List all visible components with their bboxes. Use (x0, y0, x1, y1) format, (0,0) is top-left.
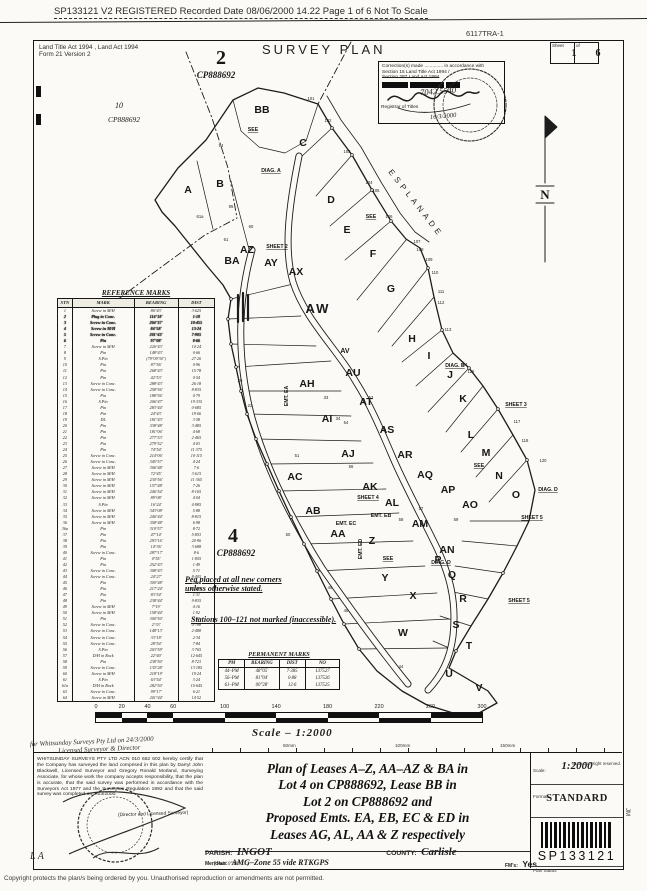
scale-bar-tick-label: 180 (323, 704, 332, 710)
bottom-copyright: Copyright protects the plan/s being orde… (4, 875, 324, 882)
station-number: 53 (369, 395, 374, 400)
lot-label: I (428, 350, 431, 362)
station-number: 110 (432, 270, 439, 275)
scale-bar-segment (122, 718, 148, 723)
lot-label: C (299, 137, 307, 149)
lot-label: AX (289, 266, 304, 278)
north-label: N (540, 187, 550, 202)
description-line: Lot 4 on CP888692, Lease BB in (207, 777, 528, 793)
scale-bar-segment (431, 718, 482, 723)
fms-label: FM's: (505, 863, 518, 869)
map-small-label: SHEET 3 (505, 402, 527, 408)
side-initials: JM (624, 808, 630, 816)
ref-header-row: STNMARKBEARINGDIST (58, 299, 214, 308)
parcel-label: 2 (216, 47, 226, 69)
map-small-label: SHEET 5 (508, 598, 530, 604)
scale-bar-segment (96, 718, 122, 723)
ruler-tick (268, 748, 269, 752)
lot-label: E (343, 224, 350, 236)
lot-label: BB (254, 104, 270, 116)
lot-label: G (387, 283, 395, 295)
lot-label: A (184, 184, 192, 196)
map-small-label: SEE (248, 127, 259, 133)
ruler-tick (520, 748, 521, 752)
lot-label: F (370, 248, 377, 260)
station-number: 94 (219, 143, 224, 148)
lot-label: D (327, 194, 335, 206)
station-number: 102 (325, 118, 333, 123)
description-line: Leases AG, AL, AA & Z respectively (207, 827, 528, 843)
lot-label: AL (385, 497, 400, 509)
station-number: 33 (324, 395, 329, 400)
ruler-tick (380, 748, 381, 752)
map-small-label: EMT. EA (284, 386, 290, 407)
scale-bar-tick-label: 260 (426, 704, 435, 710)
description-line: Proposed Emts. EA, EB, EC & ED in (207, 810, 528, 826)
ruler-tick (240, 748, 241, 752)
lot-label: AC (287, 471, 303, 483)
map-small-label: EMT. ED (358, 539, 364, 560)
scale-bar-tick-label: 0 (94, 704, 97, 710)
esplanade-road-line (327, 96, 429, 242)
station-number: 95 (229, 204, 234, 209)
station-mark-circles (227, 127, 529, 653)
seal-stamp (434, 69, 506, 141)
plan-number: SP133121 (531, 849, 623, 863)
format-label: Format: (533, 794, 549, 799)
plan-info-column: State copyright reserved. Scale: 1:2000 … (530, 752, 623, 868)
ruler-tick (548, 748, 549, 752)
map-small-label: DIAG. A (261, 168, 281, 174)
station-number: 108 (417, 247, 425, 252)
ruler-tick (464, 748, 465, 752)
plan-status-row: Plan Status (531, 867, 623, 888)
scale-text: Scale – 1:2000 (252, 727, 333, 739)
ruler-tick (436, 748, 437, 752)
lot-label: AP (441, 484, 456, 496)
station-number: 57 (419, 506, 424, 511)
station-number: 48 (344, 608, 349, 613)
lot-label: AS (380, 424, 395, 436)
lot-label: Q (448, 569, 456, 581)
lot-label: U (445, 668, 453, 680)
registration-header: SP133121 V2 REGISTERED Recorded Date 08/… (54, 6, 428, 19)
ruler-tick (408, 748, 409, 752)
station-number: 61a (197, 214, 205, 219)
station-number: 105 (373, 188, 381, 193)
lot-label: AH (299, 378, 314, 390)
perm-row: 56–PM81°04'0·88137526 (219, 675, 339, 682)
lot-label: AZ (240, 244, 255, 256)
description-line: Lot 2 on CP888692 and (207, 794, 528, 810)
parcel-label: 4 (228, 525, 238, 547)
scale-bar-tick-label: 100 (220, 704, 229, 710)
lot-label: AQ (417, 469, 433, 481)
station-number: 118 (522, 438, 529, 443)
lot-label: AW (306, 301, 331, 316)
permanent-marks-table: PERMANENT MARKS PMBEARINGDISTNO44–PM48°0… (218, 651, 340, 690)
lot-label: AR (397, 449, 413, 461)
plan-description: Plan of Leases A–Z, AA–AZ & BA inLot 4 o… (207, 761, 528, 843)
lot-label: H (408, 333, 416, 345)
map-small-label: SHEET 5 (521, 515, 543, 521)
ruler-tick (576, 748, 577, 752)
lot-label: Y (381, 572, 388, 584)
scale-bar-segment (147, 718, 173, 723)
scale-bar-segment (225, 718, 276, 723)
scale-bar-tick-label: 300 (477, 704, 486, 710)
station-number: 59 (454, 517, 459, 522)
lot-label: W (398, 627, 408, 639)
ruler-tick (212, 748, 213, 752)
perm-row: 44–PM48°05'7·385137527 (219, 668, 339, 675)
station-number: 114 (461, 362, 468, 367)
lot-label: AA (330, 528, 346, 540)
lot-label: AJ (341, 448, 355, 460)
scale-bar-tick-label: 40 (144, 704, 150, 710)
barcode (541, 822, 613, 848)
scale-bar-tick-label: 20 (119, 704, 125, 710)
ruler-tick (296, 748, 297, 752)
station-number: 20 (238, 378, 243, 383)
station-number: 56 (349, 464, 354, 469)
scale-bar-segment (328, 718, 379, 723)
scale-label: Scale: (533, 768, 546, 773)
parcel-label: CP888692 (217, 548, 256, 558)
station-number: 107 (414, 239, 422, 244)
station-number: 120 (540, 458, 548, 463)
map-small-label: SHEET 2 (266, 244, 288, 250)
lot-label: AV (340, 348, 350, 355)
ruler-tick (352, 748, 353, 752)
map-small-label: EMT. EB (371, 513, 392, 519)
station-number: 58 (399, 517, 404, 522)
ruler-label: 50mm (283, 743, 296, 748)
lot-label: AM (412, 518, 429, 530)
lot-label: X (409, 590, 416, 602)
meridian-row: Meridian: AMG–Zone 55 vide RTKGPS (205, 851, 530, 870)
lot-label: AB (305, 505, 321, 517)
format-row: Format: STANDARD (531, 793, 623, 818)
scale-row: State copyright reserved. Scale: 1:2000 (531, 760, 623, 785)
lot-label: AK (362, 481, 378, 493)
station-number: 61 (224, 237, 229, 242)
registrar-signature (388, 91, 479, 112)
scanned-survey-plan-page: { "header": { "line": "SP133121 V2 REGIS… (0, 0, 647, 891)
lot-label: B (216, 178, 224, 190)
station-number: 49 (328, 585, 333, 590)
scale-bar-segment (173, 718, 224, 723)
map-small-label: DIAG. D (431, 560, 451, 566)
perm-row: 61–PM00°28'12·6137525 (219, 682, 339, 689)
station-number: 117 (514, 419, 521, 424)
parcel-label: CP888692 (197, 70, 236, 80)
perm-header-row: PMBEARINGDISTNO (219, 660, 339, 668)
plan-number-row: SP133121 (531, 822, 623, 867)
map-small-label: SEE (366, 214, 377, 220)
station-number: 103 (344, 149, 352, 154)
plan-status-label: Plan Status (533, 868, 557, 873)
lot-label: AI (322, 413, 333, 425)
hand-initials: L A (30, 851, 44, 862)
lot-label: S (452, 619, 459, 631)
scale-bar: 0204060100140180220260300 (95, 712, 483, 723)
station-number: 106 (386, 214, 394, 219)
lot-label: T (466, 640, 473, 652)
ref-row: 64Screw in M/H201°44'14·52 (58, 695, 214, 701)
parcel-label: 10 (115, 101, 123, 110)
permanent-marks-title: PERMANENT MARKS (218, 651, 340, 658)
reference-marks-table: REFERENCE MARKS STNMARKBEARINGDIST1Screw… (57, 289, 215, 702)
scale-bar-segment (379, 718, 430, 723)
station-number: 115 (468, 369, 475, 374)
scale-bar-segment (276, 718, 327, 723)
map-small-label: SEE (474, 463, 485, 469)
lot-label: BA (224, 255, 240, 267)
lot-label: O (512, 489, 520, 501)
lot-label: AY (264, 257, 278, 269)
station-number: 109 (426, 257, 434, 262)
station-number: 101 (308, 96, 316, 101)
map-small-label: DIAG. D (538, 487, 558, 493)
ruler-tick (604, 748, 605, 752)
lot-label: AO (462, 499, 478, 511)
station-number: 54 (344, 420, 349, 425)
station-number: 44 (399, 664, 404, 669)
station-number: 50 (286, 532, 291, 537)
lot-label: L (468, 429, 475, 441)
lot-label: M (482, 447, 491, 459)
scale-bar-tick-label: 60 (170, 704, 176, 710)
esplanade-label: ESPLANADE (386, 168, 445, 240)
meridian-handnote: [ Add 0°48' … ] (214, 861, 249, 867)
station-number: 104 (366, 180, 374, 185)
lot-label: AN (439, 544, 454, 556)
map-small-label: SEE (383, 556, 394, 562)
station-number: 34 (336, 416, 341, 421)
lot-label: K (459, 393, 467, 405)
surveyor-stamp (55, 780, 195, 870)
lot-label: J (447, 369, 453, 381)
reference-marks-title: REFERENCE MARKS (57, 289, 215, 297)
lot-label: Z (369, 535, 376, 547)
scale-bar-tick-label: 140 (272, 704, 281, 710)
tra-reference: 6117TRA-1 (466, 29, 504, 38)
scale-bar-tick-label: 220 (374, 704, 383, 710)
lot-label: AU (345, 367, 360, 379)
station-number: 111 (438, 289, 445, 294)
map-small-label: SHEET 4 (357, 495, 379, 501)
lot-label: N (495, 470, 503, 482)
state-copyright: State copyright reserved. (572, 761, 621, 766)
station-number: 113 (445, 327, 452, 332)
station-number: 51 (295, 453, 300, 458)
parcel-label: CP888692 (108, 115, 140, 124)
station-number: 22 (248, 403, 253, 408)
station-number: 112 (438, 300, 445, 305)
lot-label: R (459, 593, 467, 605)
map-small-label: EMT. EC (336, 521, 357, 527)
ruler-tick (492, 748, 493, 752)
description-line: Plan of Leases A–Z, AA–AZ & BA in (207, 761, 528, 777)
ruler-tick (324, 748, 325, 752)
lot-label: V (475, 682, 482, 694)
ruler-label: 150mm (500, 743, 515, 748)
station-number: 60 (249, 224, 254, 229)
